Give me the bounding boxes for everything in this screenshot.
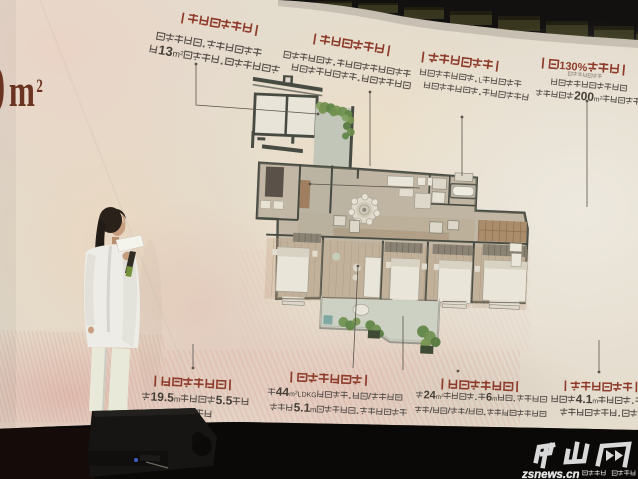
svg-text:9: 9 bbox=[0, 51, 5, 131]
svg-text:zsnews.cn: zsnews.cn bbox=[521, 469, 580, 479]
svg-text:200: 200 bbox=[573, 88, 594, 104]
svg-text:LDKG: LDKG bbox=[297, 392, 316, 400]
svg-text:44: 44 bbox=[275, 385, 289, 400]
svg-text:m: m bbox=[592, 398, 598, 405]
svg-text:m: m bbox=[492, 396, 498, 403]
svg-text:2: 2 bbox=[36, 76, 42, 97]
svg-text:5.1: 5.1 bbox=[293, 400, 311, 415]
svg-text:5.5: 5.5 bbox=[215, 393, 233, 408]
svg-text:4.1: 4.1 bbox=[576, 392, 593, 406]
svg-text:m: m bbox=[310, 405, 317, 414]
svg-text:m: m bbox=[174, 395, 181, 404]
svg-text:m: m bbox=[9, 65, 35, 116]
